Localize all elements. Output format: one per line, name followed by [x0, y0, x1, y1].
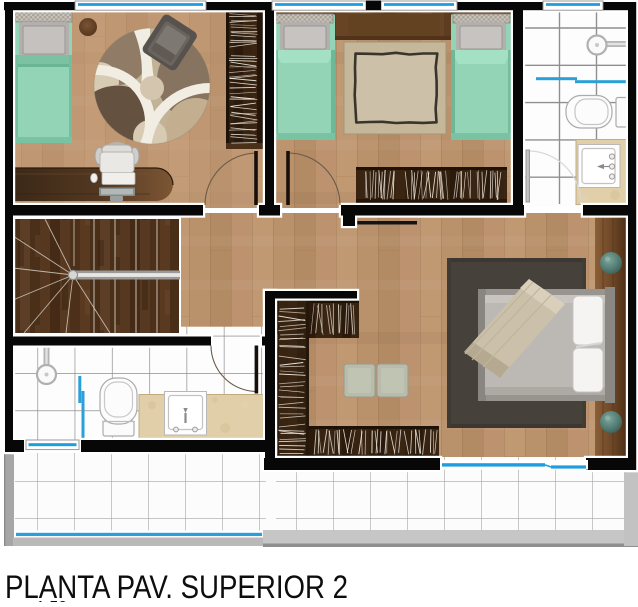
- svg-text:PLANTA PAV. SUPERIOR 2: PLANTA PAV. SUPERIOR 2: [5, 569, 348, 602]
